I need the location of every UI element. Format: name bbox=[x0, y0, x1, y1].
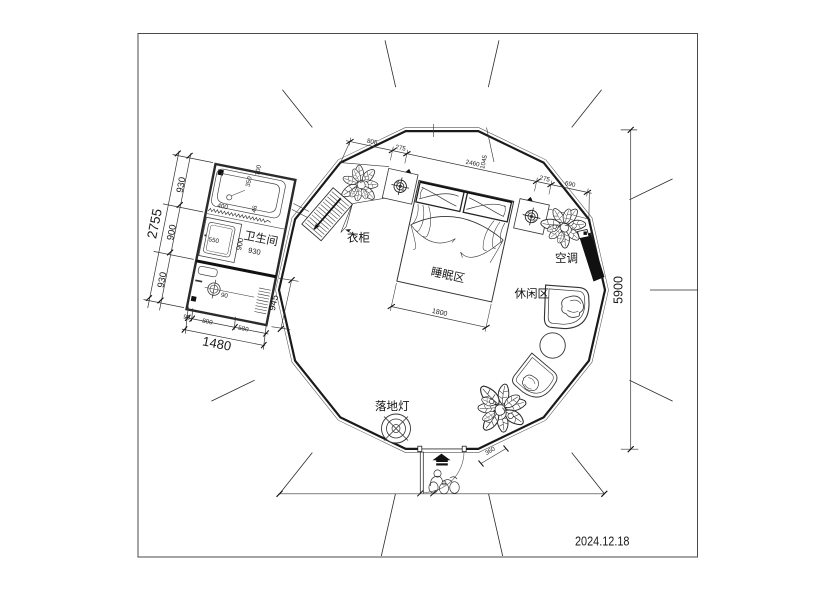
svg-text:衣柜: 衣柜 bbox=[347, 231, 370, 245]
svg-text:休闲区: 休闲区 bbox=[515, 287, 550, 301]
svg-text:空调: 空调 bbox=[555, 251, 578, 265]
svg-text:2024.12.18: 2024.12.18 bbox=[575, 534, 630, 549]
svg-text:落地灯: 落地灯 bbox=[375, 400, 410, 413]
svg-text:5900: 5900 bbox=[612, 276, 626, 304]
